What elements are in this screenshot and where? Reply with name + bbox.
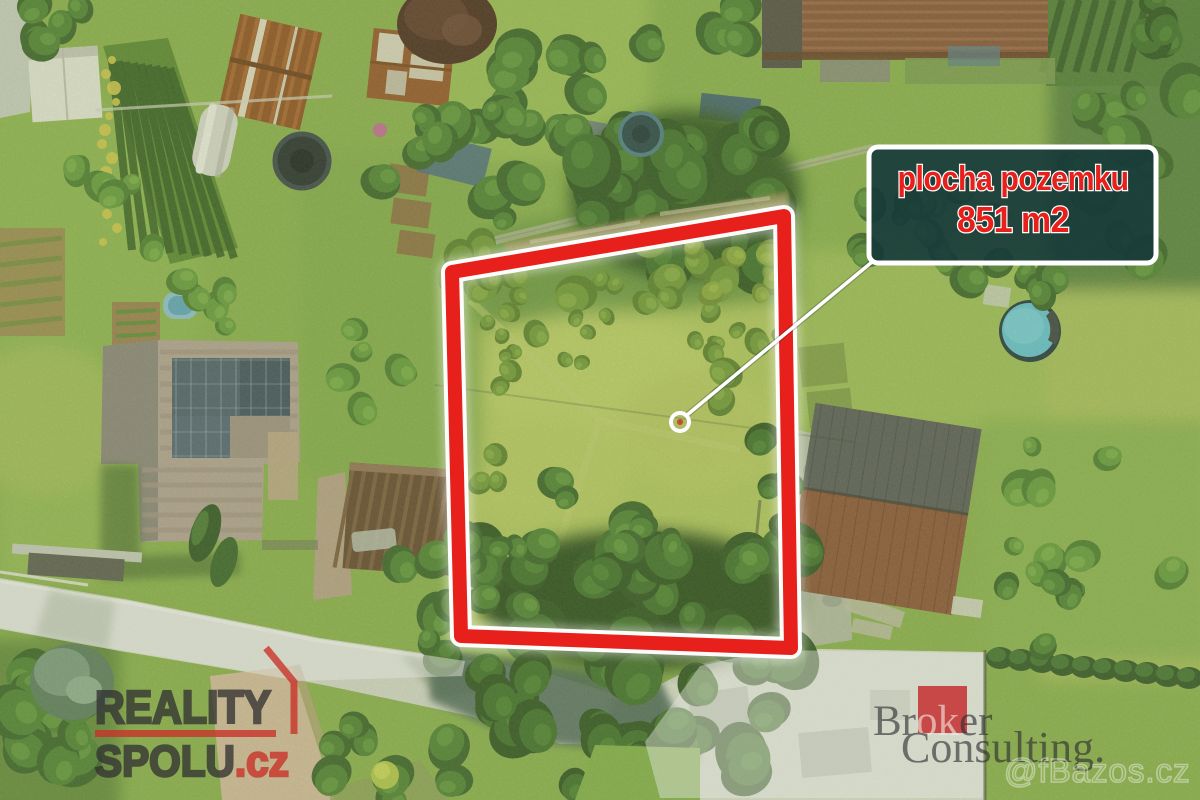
svg-text:plocha pozemku: plocha pozemku	[898, 160, 1129, 198]
svg-text:@fBazos.cz: @fBazos.cz	[1004, 752, 1191, 789]
svg-text:851 m2: 851 m2	[957, 199, 1069, 240]
svg-text:REALITY: REALITY	[95, 681, 271, 733]
svg-text:SPOLU.cz: SPOLU.cz	[95, 737, 289, 786]
